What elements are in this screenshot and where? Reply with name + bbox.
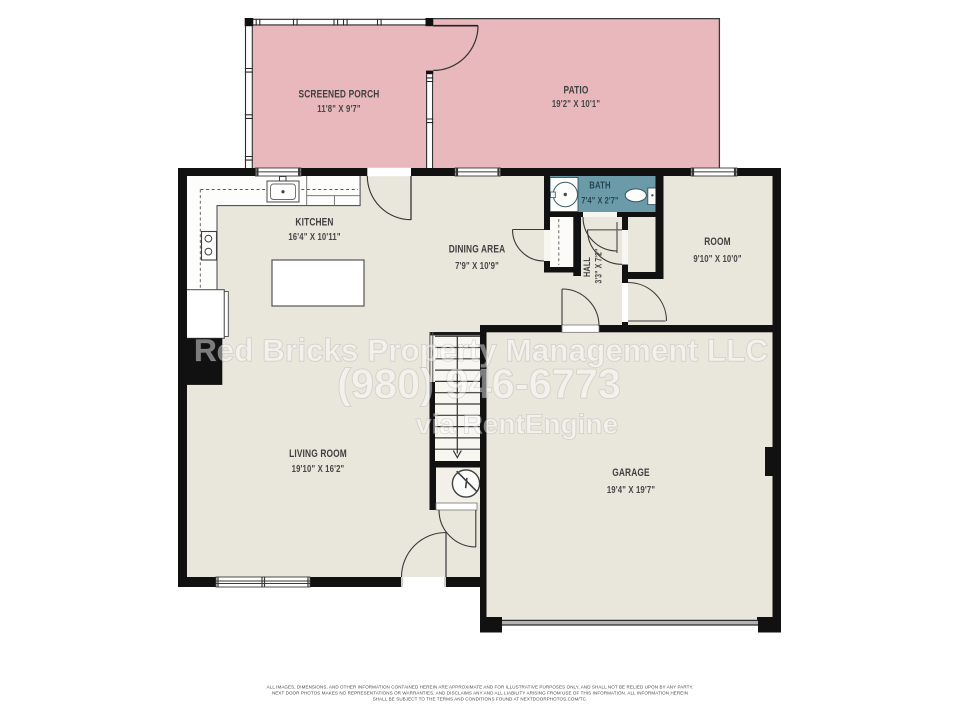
svg-text:PATIO: PATIO <box>563 84 588 96</box>
svg-text:BATH: BATH <box>589 179 611 190</box>
svg-text:19'10" X 16'2": 19'10" X 16'2" <box>292 463 345 474</box>
svg-text:11'8" X 9'7": 11'8" X 9'7" <box>317 103 360 114</box>
svg-text:HALL: HALL <box>581 257 592 277</box>
svg-text:DINING AREA: DINING AREA <box>449 243 506 255</box>
svg-text:ROOM: ROOM <box>704 236 731 248</box>
svg-text:GARAGE: GARAGE <box>612 467 650 479</box>
svg-text:SHALL BE SUBJECT TO THE TERMS: SHALL BE SUBJECT TO THE TERMS AND CONDIT… <box>373 697 588 702</box>
svg-text:(980) 946-6773: (980) 946-6773 <box>337 360 621 407</box>
svg-text:3'3" X 7'2": 3'3" X 7'2" <box>594 248 604 283</box>
svg-text:19'2" X 10'1": 19'2" X 10'1" <box>552 98 600 109</box>
svg-text:7'4" X 2'7": 7'4" X 2'7" <box>581 194 618 205</box>
svg-text:NEXT DOOR PHOTOS MAKES NO REPR: NEXT DOOR PHOTOS MAKES NO REPRESENTATION… <box>272 691 688 696</box>
svg-text:via RentEngine: via RentEngine <box>416 409 618 440</box>
svg-text:9'10" X 10'0": 9'10" X 10'0" <box>693 253 741 264</box>
svg-text:ALL IMAGES, DIMENSIONS, AND OT: ALL IMAGES, DIMENSIONS, AND OTHER INFORM… <box>267 685 694 690</box>
svg-text:19'4" X 19'7": 19'4" X 19'7" <box>607 484 655 495</box>
svg-text:SCREENED PORCH: SCREENED PORCH <box>299 88 380 100</box>
svg-text:16'4" X 10'11": 16'4" X 10'11" <box>288 231 340 242</box>
svg-text:7'9" X 10'9": 7'9" X 10'9" <box>455 260 499 271</box>
svg-text:KITCHEN: KITCHEN <box>295 216 333 228</box>
svg-text:LIVING ROOM: LIVING ROOM <box>289 448 347 460</box>
